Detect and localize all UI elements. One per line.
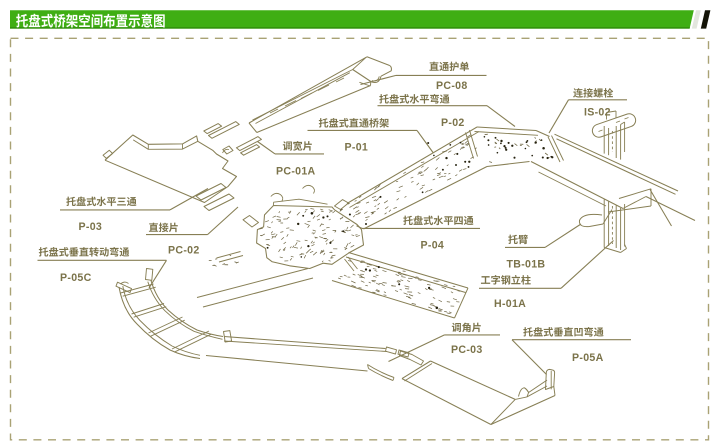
svg-text:P-05A: P-05A — [572, 352, 604, 364]
svg-text:P-04: P-04 — [421, 240, 445, 252]
svg-text:PC-03: PC-03 — [451, 344, 483, 356]
svg-text:H-01A: H-01A — [494, 298, 526, 310]
svg-text:IS-02: IS-02 — [584, 107, 611, 119]
svg-text:P-03: P-03 — [79, 221, 103, 233]
svg-text:P-01: P-01 — [345, 142, 369, 154]
svg-text:PC-01A: PC-01A — [276, 166, 316, 178]
svg-text:P-05C: P-05C — [60, 272, 92, 284]
svg-text:PC-02: PC-02 — [168, 245, 200, 257]
svg-text:PC-08: PC-08 — [436, 80, 468, 92]
svg-text:TB-01B: TB-01B — [507, 259, 546, 271]
svg-text:P-02: P-02 — [441, 117, 465, 129]
